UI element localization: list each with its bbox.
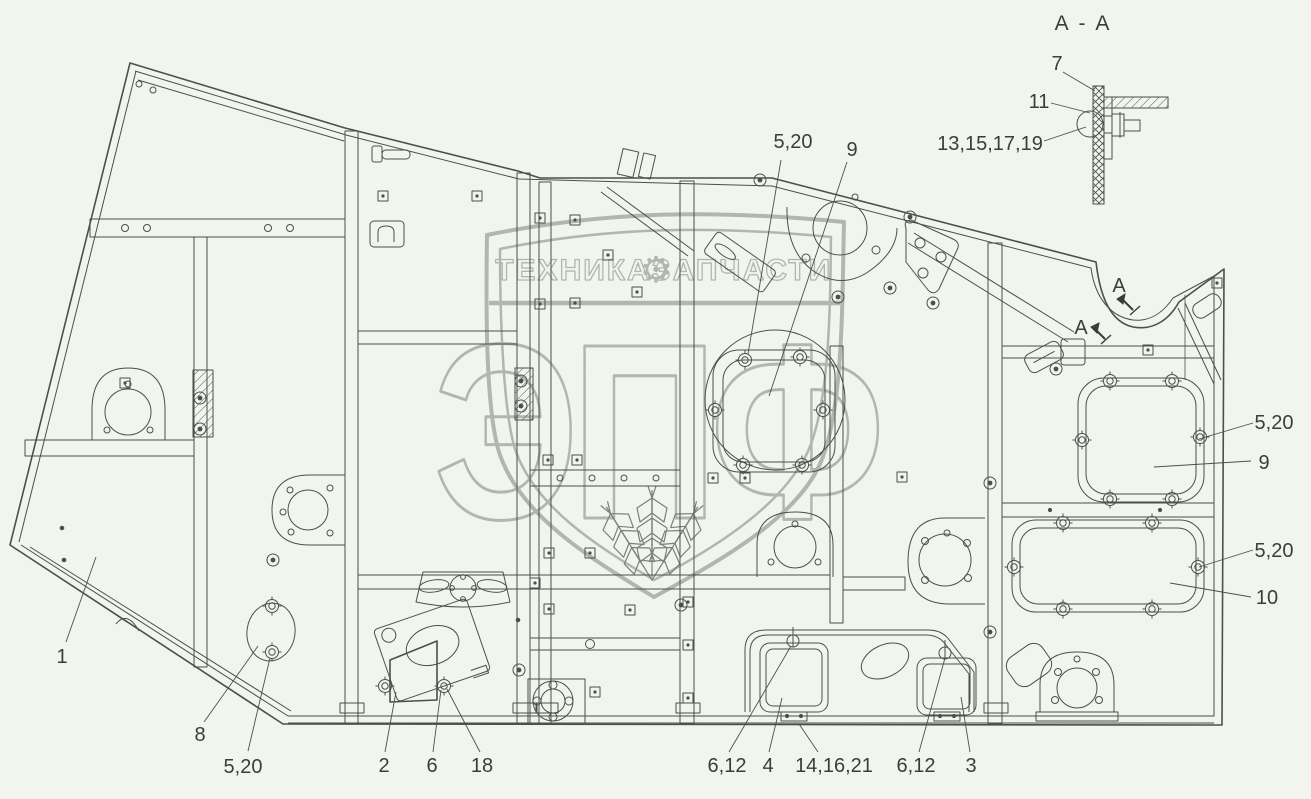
section-view-a-a: А - А 7 11 13,15,17,19: [937, 12, 1168, 204]
callout-bottom-14-16-21: 14,16,21: [795, 755, 873, 777]
panel-assembly-drawing: ТЕХНИКА ЗАПЧАСТИ ⚙ ЭПФ: [0, 0, 1311, 799]
watermark-word-right: ЗАПЧАСТИ: [652, 254, 832, 287]
callout-top-5-20: 5,20: [774, 131, 813, 153]
callout-right-5-20-lower: 5,20: [1255, 540, 1294, 562]
callout-right-9: 9: [1258, 452, 1269, 474]
callout-top-9: 9: [846, 139, 857, 161]
section-cut-arrows: А А: [1074, 275, 1140, 344]
callout-right-10: 10: [1256, 587, 1278, 609]
callout-bottom-8: 8: [194, 724, 205, 746]
callout-bottom-6-12-left: 6,12: [708, 755, 747, 777]
watermark-logo: ТЕХНИКА ЗАПЧАСТИ ⚙ ЭПФ: [433, 214, 878, 597]
section-view-title: А - А: [1055, 12, 1112, 35]
section-arrow-lower-label: А: [1074, 317, 1088, 339]
callout-13-15-17-19: 13,15,17,19: [937, 133, 1043, 155]
callout-bottom-6-12-right: 6,12: [897, 755, 936, 777]
drawing-canvas: ТЕХНИКА ЗАПЧАСТИ ⚙ ЭПФ: [0, 0, 1311, 799]
callout-bottom-6: 6: [426, 755, 437, 777]
callout-11: 11: [1029, 91, 1050, 113]
callout-bottom-5-20: 5,20: [224, 756, 263, 778]
watermark-logo-text: ЭПФ: [433, 293, 878, 572]
gear-icon: ⚙: [640, 249, 672, 290]
callout-left-1: 1: [56, 646, 67, 668]
watermark-word-left: ТЕХНИКА: [495, 254, 651, 287]
callout-bottom-4: 4: [762, 755, 773, 777]
callout-bottom-18: 18: [471, 755, 493, 777]
callout-bottom-2: 2: [378, 755, 389, 777]
section-arrow-upper-label: А: [1112, 275, 1126, 297]
callout-right-5-20-upper: 5,20: [1255, 412, 1294, 434]
callout-7: 7: [1051, 53, 1062, 75]
callout-bottom-3: 3: [965, 755, 976, 777]
